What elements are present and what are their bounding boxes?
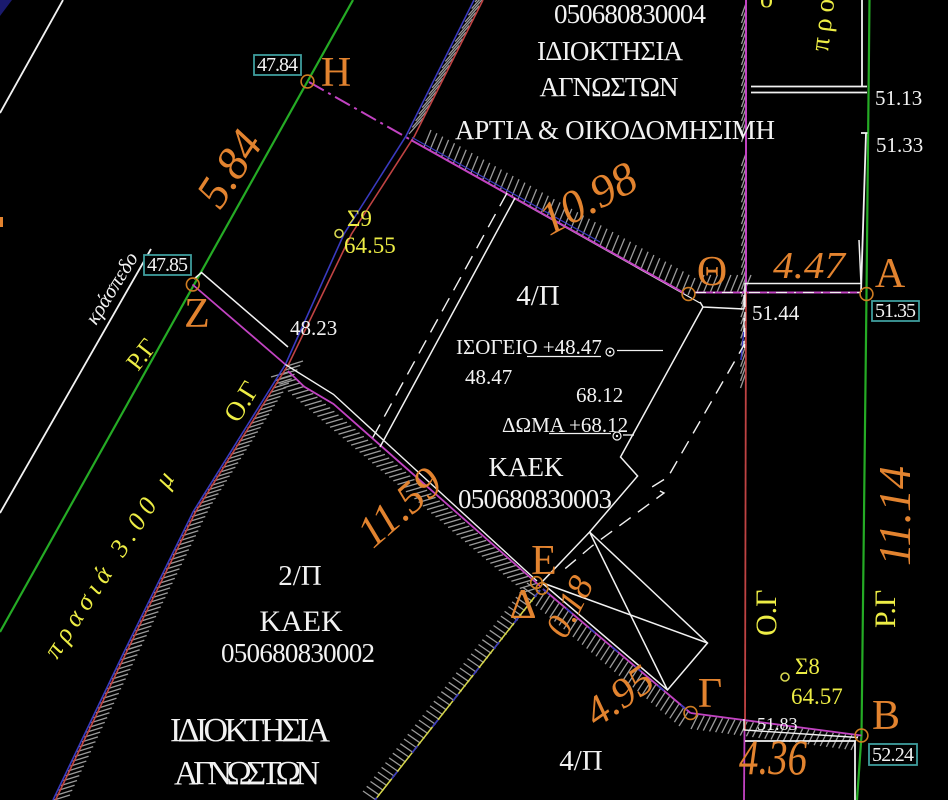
svg-text:4.47: 4.47 xyxy=(773,245,847,287)
svg-text:Θ: Θ xyxy=(697,249,727,295)
svg-text:47.85: 47.85 xyxy=(147,254,188,276)
svg-text:ΙΔΙΟΚΤΗΣΙΑ: ΙΔΙΟΚΤΗΣΙΑ xyxy=(170,712,330,749)
svg-text:4.36: 4.36 xyxy=(739,729,807,785)
svg-text:47.84: 47.84 xyxy=(257,54,298,76)
svg-text:68.12: 68.12 xyxy=(576,383,623,407)
svg-text:ΚΑΕΚ: ΚΑΕΚ xyxy=(489,452,564,482)
svg-text:51.13: 51.13 xyxy=(875,86,922,110)
svg-text:64.57: 64.57 xyxy=(791,684,843,709)
svg-text:ΑΓΝΩΣΤΩΝ: ΑΓΝΩΣΤΩΝ xyxy=(174,755,320,792)
svg-text:11.14: 11.14 xyxy=(869,466,920,566)
svg-text:64.55: 64.55 xyxy=(344,233,396,258)
svg-text:Δ: Δ xyxy=(509,582,536,628)
svg-text:48.47: 48.47 xyxy=(465,365,512,389)
svg-text:ΚΑΕΚ: ΚΑΕΚ xyxy=(259,605,343,638)
svg-text:ΙΣΟΓΕΙΟ +48.47: ΙΣΟΓΕΙΟ +48.47 xyxy=(456,335,602,359)
svg-text:Γ: Γ xyxy=(698,671,722,717)
svg-text:Ρ.Γ: Ρ.Γ xyxy=(869,590,902,628)
svg-text:Ζ: Ζ xyxy=(184,291,210,337)
svg-text:Η: Η xyxy=(321,50,351,96)
svg-text:ΑΡΤΙΑ & ΟΙΚΟΔΟΜΗΣΙΜΗ: ΑΡΤΙΑ & ΟΙΚΟΔΟΜΗΣΙΜΗ xyxy=(455,115,775,145)
svg-text:Σ8: Σ8 xyxy=(795,654,820,679)
svg-text:51.44: 51.44 xyxy=(752,301,800,325)
svg-text:Ε: Ε xyxy=(531,538,557,584)
svg-text:ΔΩΜΑ +68.12: ΔΩΜΑ +68.12 xyxy=(502,413,628,437)
svg-text:51.33: 51.33 xyxy=(876,133,923,157)
svg-text:Ο.Γ: Ο.Γ xyxy=(750,589,783,636)
svg-text:ΙΔΙΟΚΤΗΣΙΑ: ΙΔΙΟΚΤΗΣΙΑ xyxy=(537,36,684,66)
svg-text:050680830004: 050680830004 xyxy=(554,0,707,29)
svg-text:Σ9: Σ9 xyxy=(347,206,372,231)
svg-text:52.24: 52.24 xyxy=(872,744,914,766)
svg-text:48.23: 48.23 xyxy=(290,316,337,340)
svg-text:ο: ο xyxy=(760,0,773,13)
svg-text:050680830002: 050680830002 xyxy=(221,638,375,668)
svg-text:Α: Α xyxy=(875,251,906,297)
svg-text:51.35: 51.35 xyxy=(875,300,916,322)
svg-text:2/Π: 2/Π xyxy=(278,560,322,592)
svg-text:Β: Β xyxy=(872,693,900,739)
svg-text:050680830003: 050680830003 xyxy=(458,484,612,514)
svg-text:ΑΓΝΩΣΤΩΝ: ΑΓΝΩΣΤΩΝ xyxy=(540,72,679,102)
svg-text:4/Π: 4/Π xyxy=(559,745,603,777)
svg-text:4/Π: 4/Π xyxy=(516,280,560,312)
